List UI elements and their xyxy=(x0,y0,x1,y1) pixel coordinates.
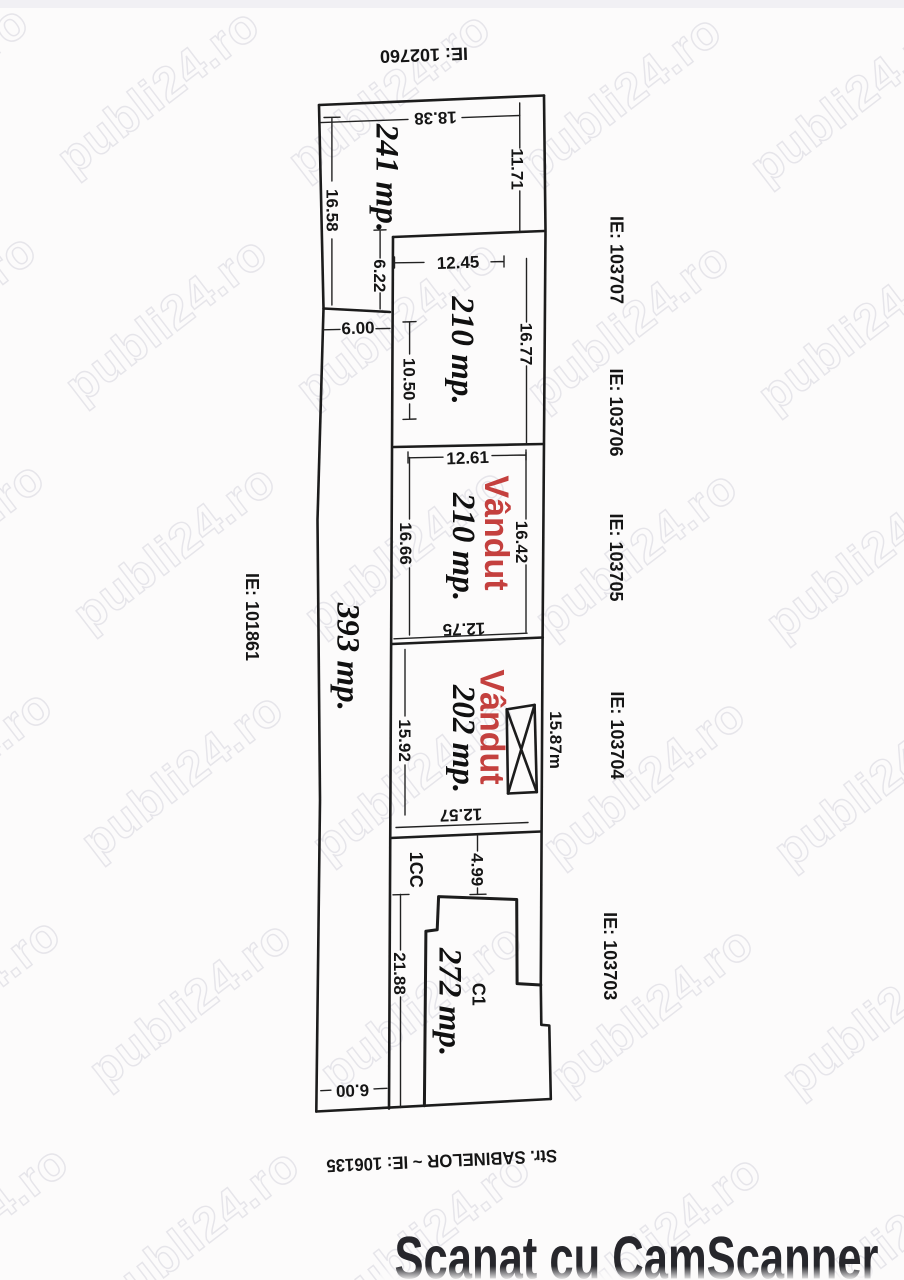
svg-text:10.50: 10.50 xyxy=(400,358,419,401)
svg-text:C1: C1 xyxy=(469,983,489,1006)
svg-text:Vândut: Vândut xyxy=(473,669,511,784)
svg-text:6.00: 6.00 xyxy=(336,1080,370,1100)
svg-text:12.61: 12.61 xyxy=(446,448,489,468)
svg-text:15.92: 15.92 xyxy=(395,719,414,762)
svg-text:6.22: 6.22 xyxy=(370,259,389,292)
svg-text:15.87m: 15.87m xyxy=(546,711,565,769)
svg-text:IE: 103707: IE: 103707 xyxy=(607,216,627,304)
svg-text:16.58: 16.58 xyxy=(322,189,341,232)
svg-text:IE: 103703: IE: 103703 xyxy=(600,912,620,1000)
svg-text:12.57: 12.57 xyxy=(439,804,482,824)
svg-text:1CC: 1CC xyxy=(406,852,426,888)
svg-text:4.99: 4.99 xyxy=(467,853,486,886)
svg-text:11.71: 11.71 xyxy=(508,148,527,190)
svg-text:16.77: 16.77 xyxy=(516,323,535,366)
svg-text:IE: 102760: IE: 102760 xyxy=(380,43,469,66)
svg-text:IE: 101861: IE: 101861 xyxy=(242,573,262,661)
svg-text:12.45: 12.45 xyxy=(436,253,479,273)
svg-text:IE: 103706: IE: 103706 xyxy=(606,368,626,456)
svg-text:21.88: 21.88 xyxy=(390,952,409,995)
svg-text:210 mp.: 210 mp. xyxy=(444,295,480,404)
svg-text:393 mp.: 393 mp. xyxy=(330,602,366,711)
svg-text:6.00: 6.00 xyxy=(341,318,375,338)
svg-text:241 mp.: 241 mp. xyxy=(368,123,404,232)
svg-text:210 mp.: 210 mp. xyxy=(445,492,481,601)
svg-text:16.66: 16.66 xyxy=(396,522,415,565)
svg-text:IE: 103705: IE: 103705 xyxy=(606,513,626,601)
svg-text:272 mp.: 272 mp. xyxy=(431,947,467,1056)
svg-text:18.38: 18.38 xyxy=(414,108,457,128)
svg-text:12.75: 12.75 xyxy=(442,619,485,639)
svg-text:Vândut: Vândut xyxy=(477,475,515,590)
svg-text:IE: 103704: IE: 103704 xyxy=(607,691,627,779)
